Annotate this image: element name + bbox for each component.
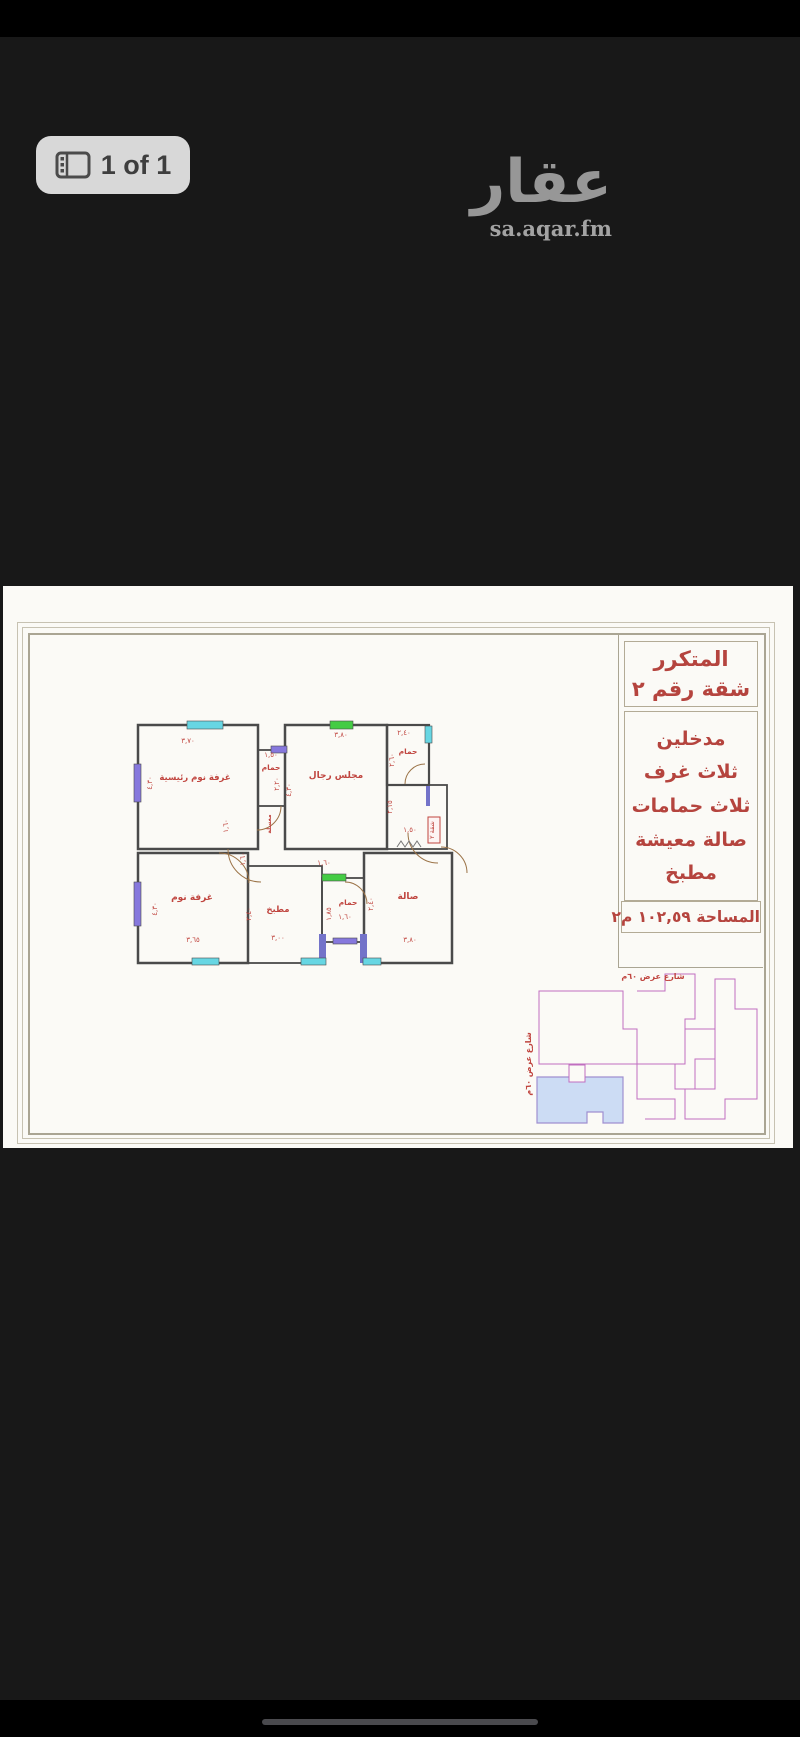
walls (138, 725, 452, 963)
dim: ١,٦٠ (222, 819, 230, 833)
page-counter-label: 1 of 1 (101, 150, 172, 181)
unit-title: شقة رقم ٢ (625, 677, 757, 701)
dim: ٣,٧٠ (181, 737, 195, 745)
dim: ٢,٦٠ (388, 753, 396, 767)
window-purple (134, 882, 141, 926)
room-label-bathroom: حمام (262, 763, 281, 772)
feature-item: صالة معيشة (625, 829, 757, 851)
dim: ٢,٤٠ (397, 729, 411, 737)
unit-tag-label: شقة ٢ (428, 821, 436, 839)
room-label-bathroom: حمام (339, 898, 358, 907)
floor-plan-sheet: المتكرر شقة رقم ٢ مدخلين ثلاث غرف ثلاث ح… (3, 586, 793, 1148)
title-block: المتكرر شقة رقم ٢ مدخلين ثلاث غرف ثلاث ح… (618, 633, 763, 968)
feature-item: مدخلين (625, 728, 757, 750)
dim: ٣,٨٠ (403, 936, 417, 944)
brand-watermark: عقار sa.aqar.fm (440, 150, 612, 241)
feature-item: ثلاث غرف (625, 761, 757, 783)
project-title: المتكرر (625, 647, 757, 671)
feature-item: ثلاث حمامات (625, 795, 757, 817)
dim: ١,٦٠ (338, 913, 352, 921)
window-cyan (363, 958, 381, 965)
photo-viewer-screen: 1 of 1 عقار sa.aqar.fm المتكرر شقة رقم ٢… (0, 0, 800, 1737)
window-green (322, 874, 346, 881)
dim: ٢,١٥ (386, 800, 394, 814)
dim: ٤,٣٠ (285, 783, 293, 797)
brand-domain: sa.aqar.fm (440, 216, 612, 241)
dim: ٢,٢٠ (273, 777, 281, 791)
dim: ٣,٦٥ (186, 936, 200, 944)
brand-logo-text: عقار (440, 150, 612, 214)
room-label-majlis: مجلس رجال (309, 771, 363, 781)
dim: ١,٦٠ (239, 852, 247, 866)
page-counter-badge[interactable]: 1 of 1 (36, 136, 190, 194)
window-cyan (301, 958, 326, 965)
street-label-top: شارع عرض ٦٠م (621, 972, 684, 982)
dim: ١,٥٠ (264, 751, 278, 759)
room-label-hall: صالة (398, 892, 419, 902)
dim: ٣,٨٠ (334, 731, 348, 739)
window-purple (134, 764, 141, 802)
window-cyan (192, 958, 219, 965)
dim: ١,٥٠ (403, 826, 417, 834)
room-label-bathroom: حمام (399, 747, 418, 756)
dim: ١,٦٠ (317, 859, 331, 867)
site-plan-subject-plot (537, 1065, 623, 1123)
dim: ٢,٤٠ (245, 907, 253, 921)
room-label-bedroom: غرفة نوم (171, 893, 213, 903)
dim: ٤,٣٠ (146, 776, 154, 790)
unit-tag: شقة ٢ (428, 817, 440, 843)
street-label-left: شارع عرض ٦٠م (525, 1032, 534, 1095)
room-label-washbasin: مغسلة (266, 814, 273, 834)
window-cyan (425, 726, 432, 743)
home-indicator[interactable] (262, 1719, 538, 1725)
feature-item: مطبخ (625, 862, 757, 884)
room-label-master-bedroom: غرفة نوم رئيسية (159, 773, 230, 783)
dim: ٢,٤٠ (367, 897, 375, 911)
site-plan: شارع عرض ٦٠م شارع عرض ٦٠م (525, 969, 765, 1134)
room-labels: غرفة نوم رئيسية حمام مجلس رجال حمام مغسل… (159, 747, 418, 915)
entry-threshold (397, 841, 421, 847)
dim: ١,٨٥ (325, 907, 333, 921)
gallery-icon (55, 151, 91, 179)
window-cyan (187, 721, 223, 729)
title-block-features: مدخلين ثلاث غرف ثلاث حمامات صالة معيشة م… (624, 711, 758, 901)
room-label-kitchen: مطبخ (266, 905, 289, 915)
dim: ٤,٣٠ (151, 902, 159, 916)
floor-plan-drawing: شقة ٢ غرفة نوم رئيسية حمام مجلس رجال حما… (131, 716, 471, 974)
window-green (330, 721, 353, 729)
title-block-header: المتكرر شقة رقم ٢ (624, 641, 758, 707)
dim: ٣,٠٠ (271, 934, 285, 942)
area-label: المساحة ١٠٢,٥٩ م٢ (621, 901, 761, 933)
window-purple (333, 938, 357, 944)
